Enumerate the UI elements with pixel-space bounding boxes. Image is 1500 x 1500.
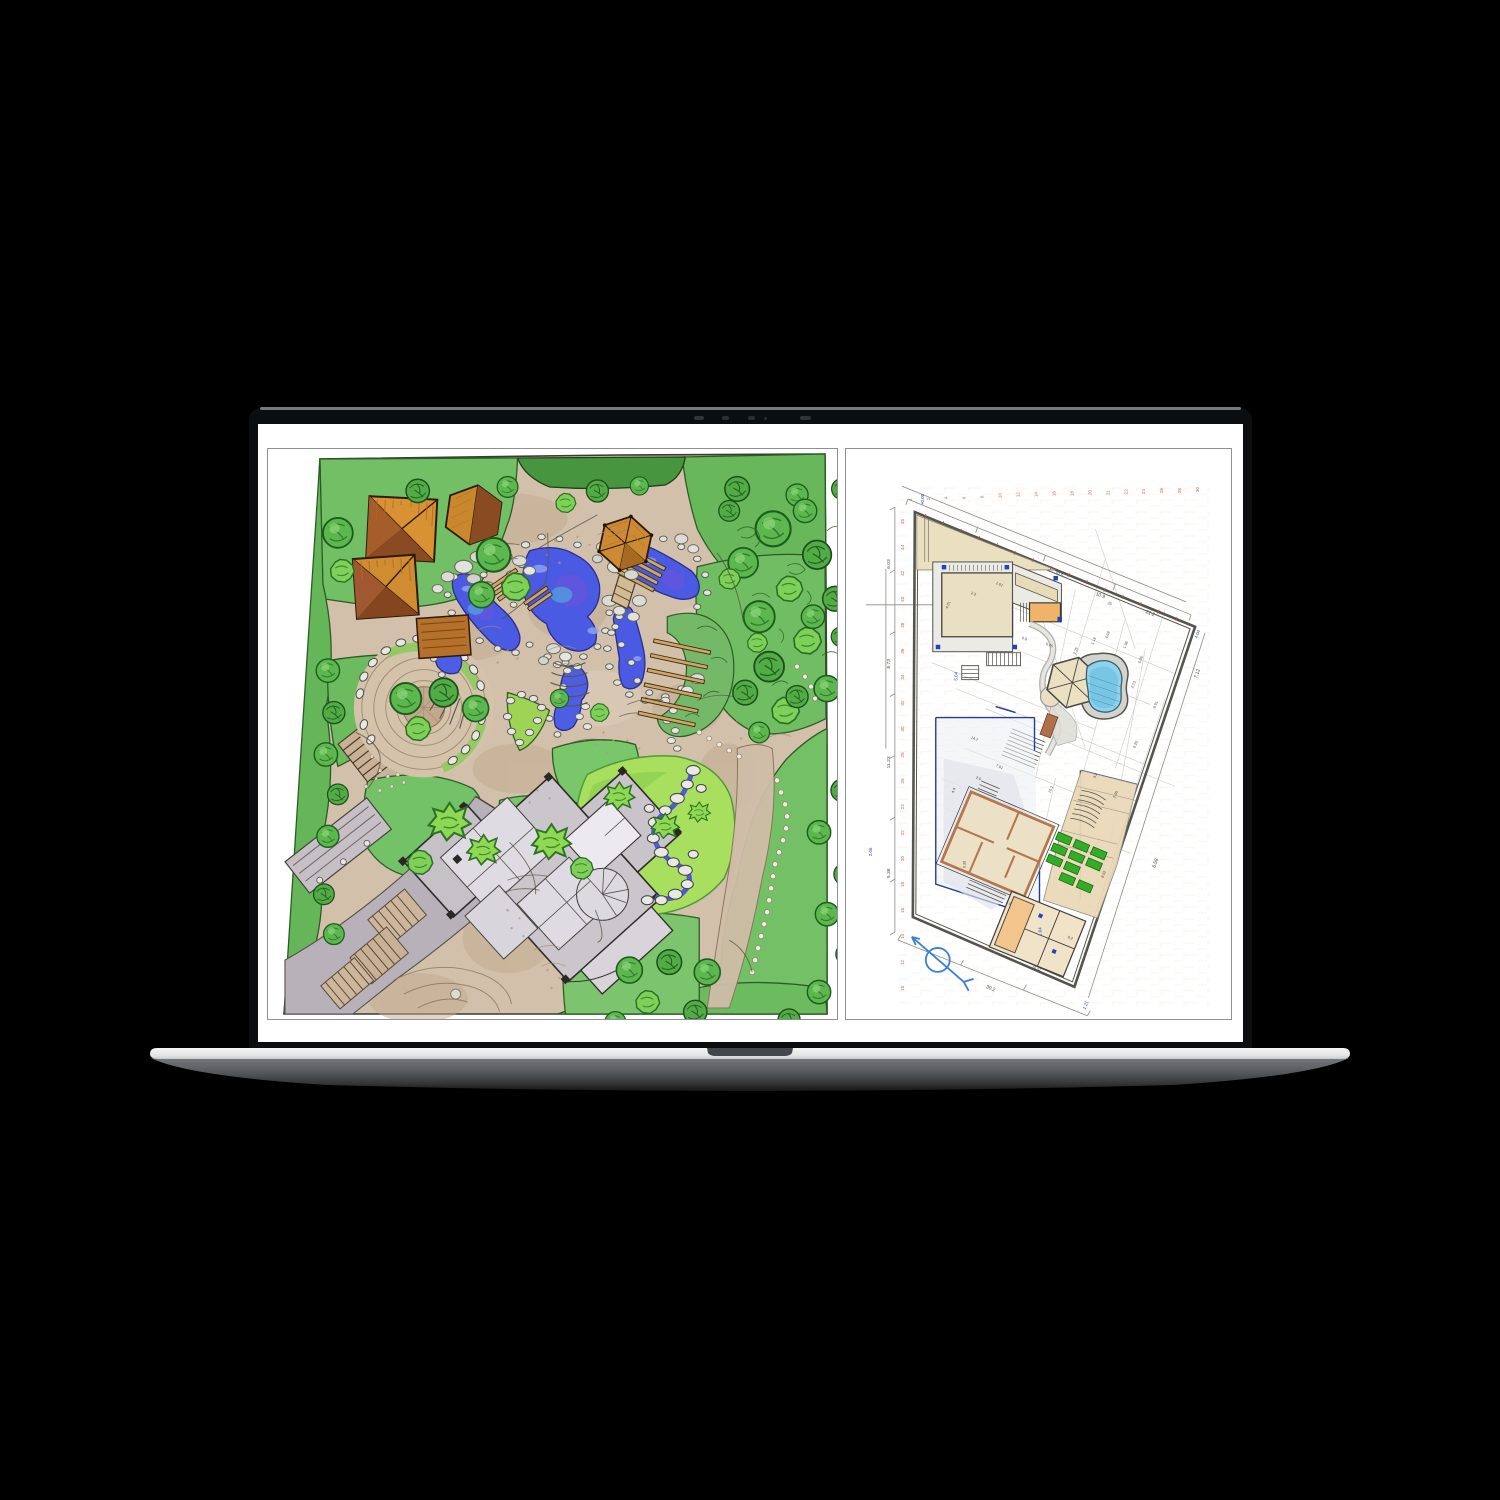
svg-text:22: 22 xyxy=(1123,489,1128,495)
svg-text:6.03: 6.03 xyxy=(886,559,892,569)
svg-text:24: 24 xyxy=(1141,489,1146,495)
svg-text:30: 30 xyxy=(1195,487,1200,493)
svg-text:14: 14 xyxy=(900,933,905,939)
svg-text:42: 42 xyxy=(900,570,905,576)
svg-text:30: 30 xyxy=(900,726,905,732)
svg-text:28: 28 xyxy=(1177,488,1182,494)
svg-text:26: 26 xyxy=(1159,488,1164,494)
svg-text:12: 12 xyxy=(900,959,905,965)
svg-text:20: 20 xyxy=(1087,490,1092,496)
svg-text:0.38: 0.38 xyxy=(963,861,967,868)
svg-text:8: 8 xyxy=(980,495,985,498)
svg-text:4: 4 xyxy=(944,496,949,499)
svg-text:18: 18 xyxy=(1069,491,1074,497)
svg-text:12: 12 xyxy=(1016,492,1021,498)
svg-text:5.04: 5.04 xyxy=(954,671,959,680)
svg-text:8.73: 8.73 xyxy=(886,659,892,669)
svg-text:40: 40 xyxy=(900,596,905,602)
svg-text:2.06: 2.06 xyxy=(868,847,873,856)
svg-text:28: 28 xyxy=(900,752,905,758)
svg-text:38: 38 xyxy=(900,622,905,628)
svg-text:21: 21 xyxy=(1105,490,1110,496)
svg-text:5.38: 5.38 xyxy=(886,868,892,878)
svg-text:22: 22 xyxy=(900,830,905,836)
svg-text:+0.00: +0.00 xyxy=(920,493,925,505)
svg-text:34: 34 xyxy=(900,674,905,680)
svg-text:36: 36 xyxy=(900,648,905,654)
svg-text:16: 16 xyxy=(1051,491,1056,497)
svg-text:20: 20 xyxy=(900,856,905,862)
svg-text:6: 6 xyxy=(962,496,967,499)
svg-text:10: 10 xyxy=(900,985,905,991)
svg-text:18: 18 xyxy=(900,882,905,888)
svg-text:32: 32 xyxy=(900,700,905,706)
svg-text:24: 24 xyxy=(900,804,905,810)
svg-text:16: 16 xyxy=(900,907,905,913)
svg-text:45: 45 xyxy=(900,518,905,524)
svg-text:26: 26 xyxy=(900,778,905,784)
svg-text:10: 10 xyxy=(998,493,1003,499)
svg-text:44: 44 xyxy=(900,544,905,550)
svg-text:1.04: 1.04 xyxy=(1037,927,1042,936)
svg-text:14: 14 xyxy=(1034,492,1039,498)
svg-text:11.23: 11.23 xyxy=(886,756,892,768)
